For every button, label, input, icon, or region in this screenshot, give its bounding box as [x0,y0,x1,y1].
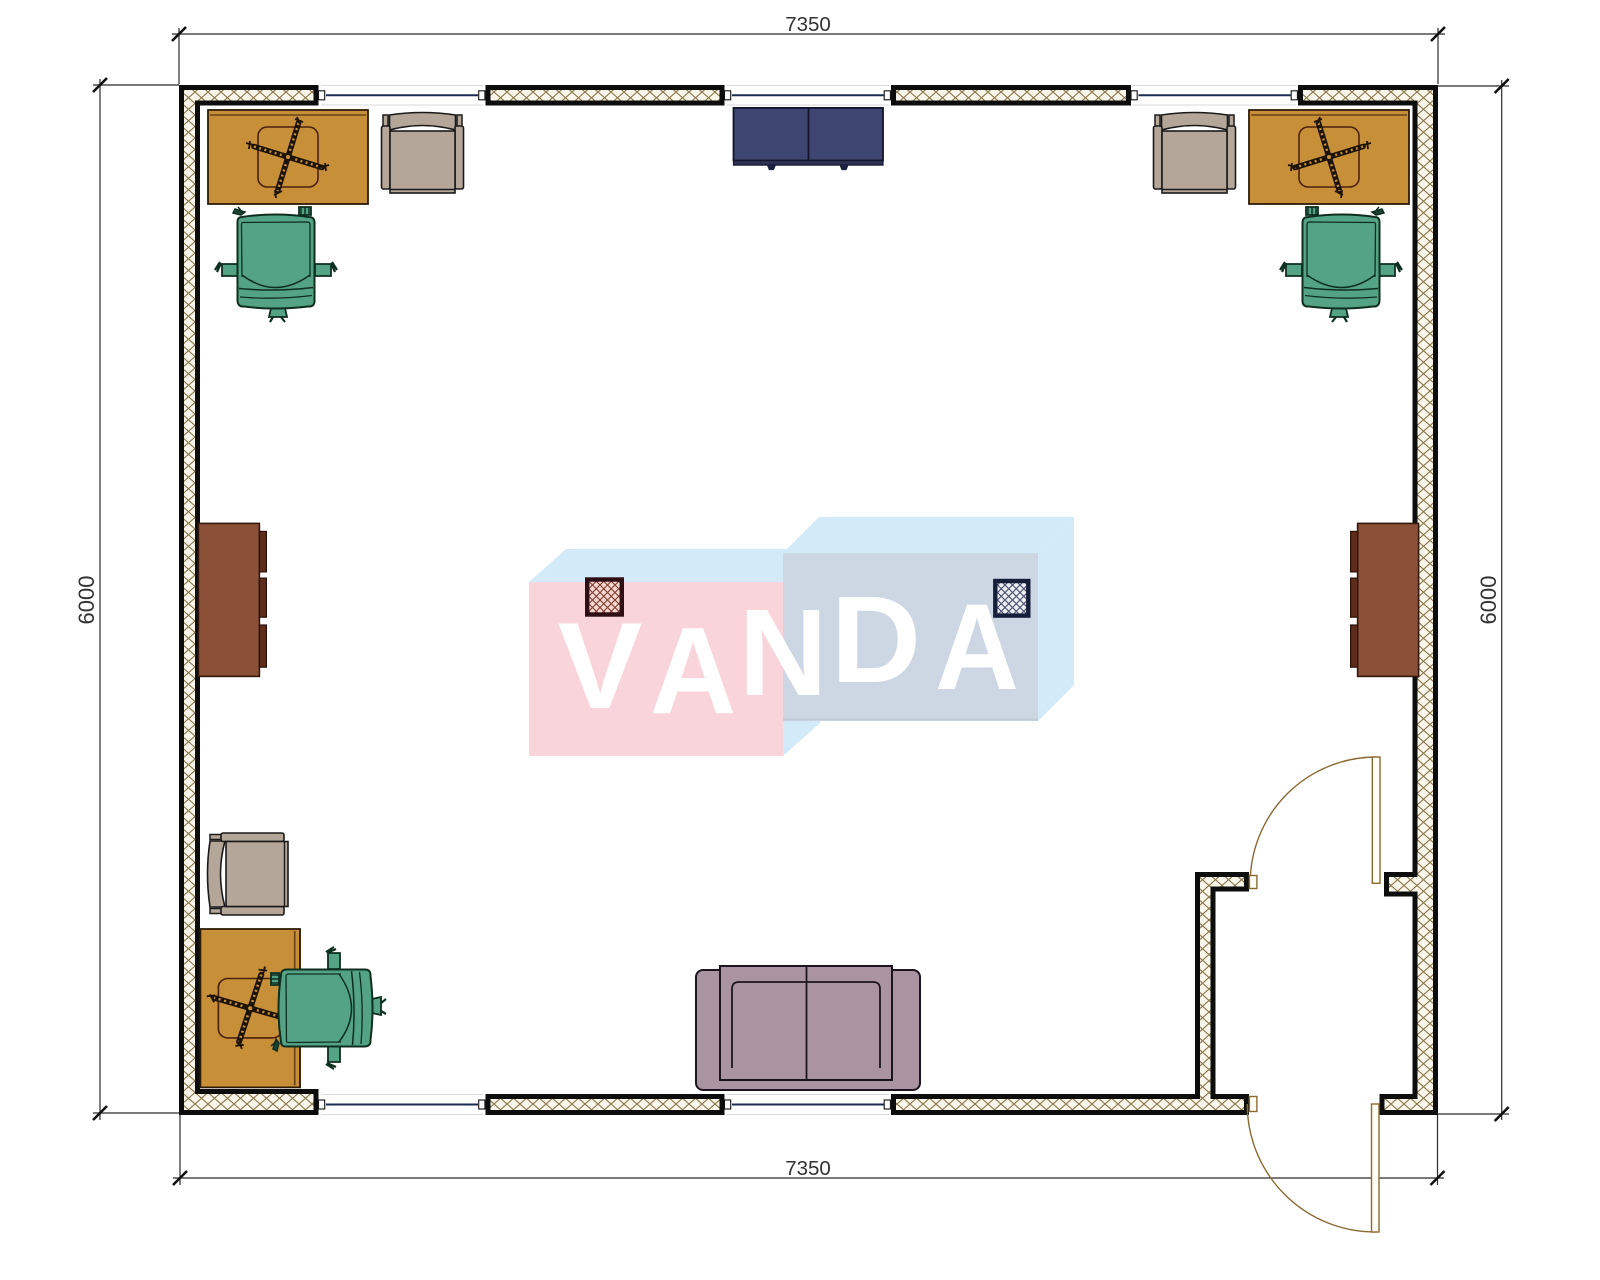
svg-text:N: N [739,585,828,722]
svg-text:V: V [558,597,643,735]
svg-text:7350: 7350 [785,13,831,36]
svg-text:A: A [650,602,737,740]
svg-text:D: D [831,572,921,709]
svg-text:6000: 6000 [74,576,99,625]
svg-text:6000: 6000 [1476,576,1501,625]
svg-text:7350: 7350 [785,1157,831,1180]
